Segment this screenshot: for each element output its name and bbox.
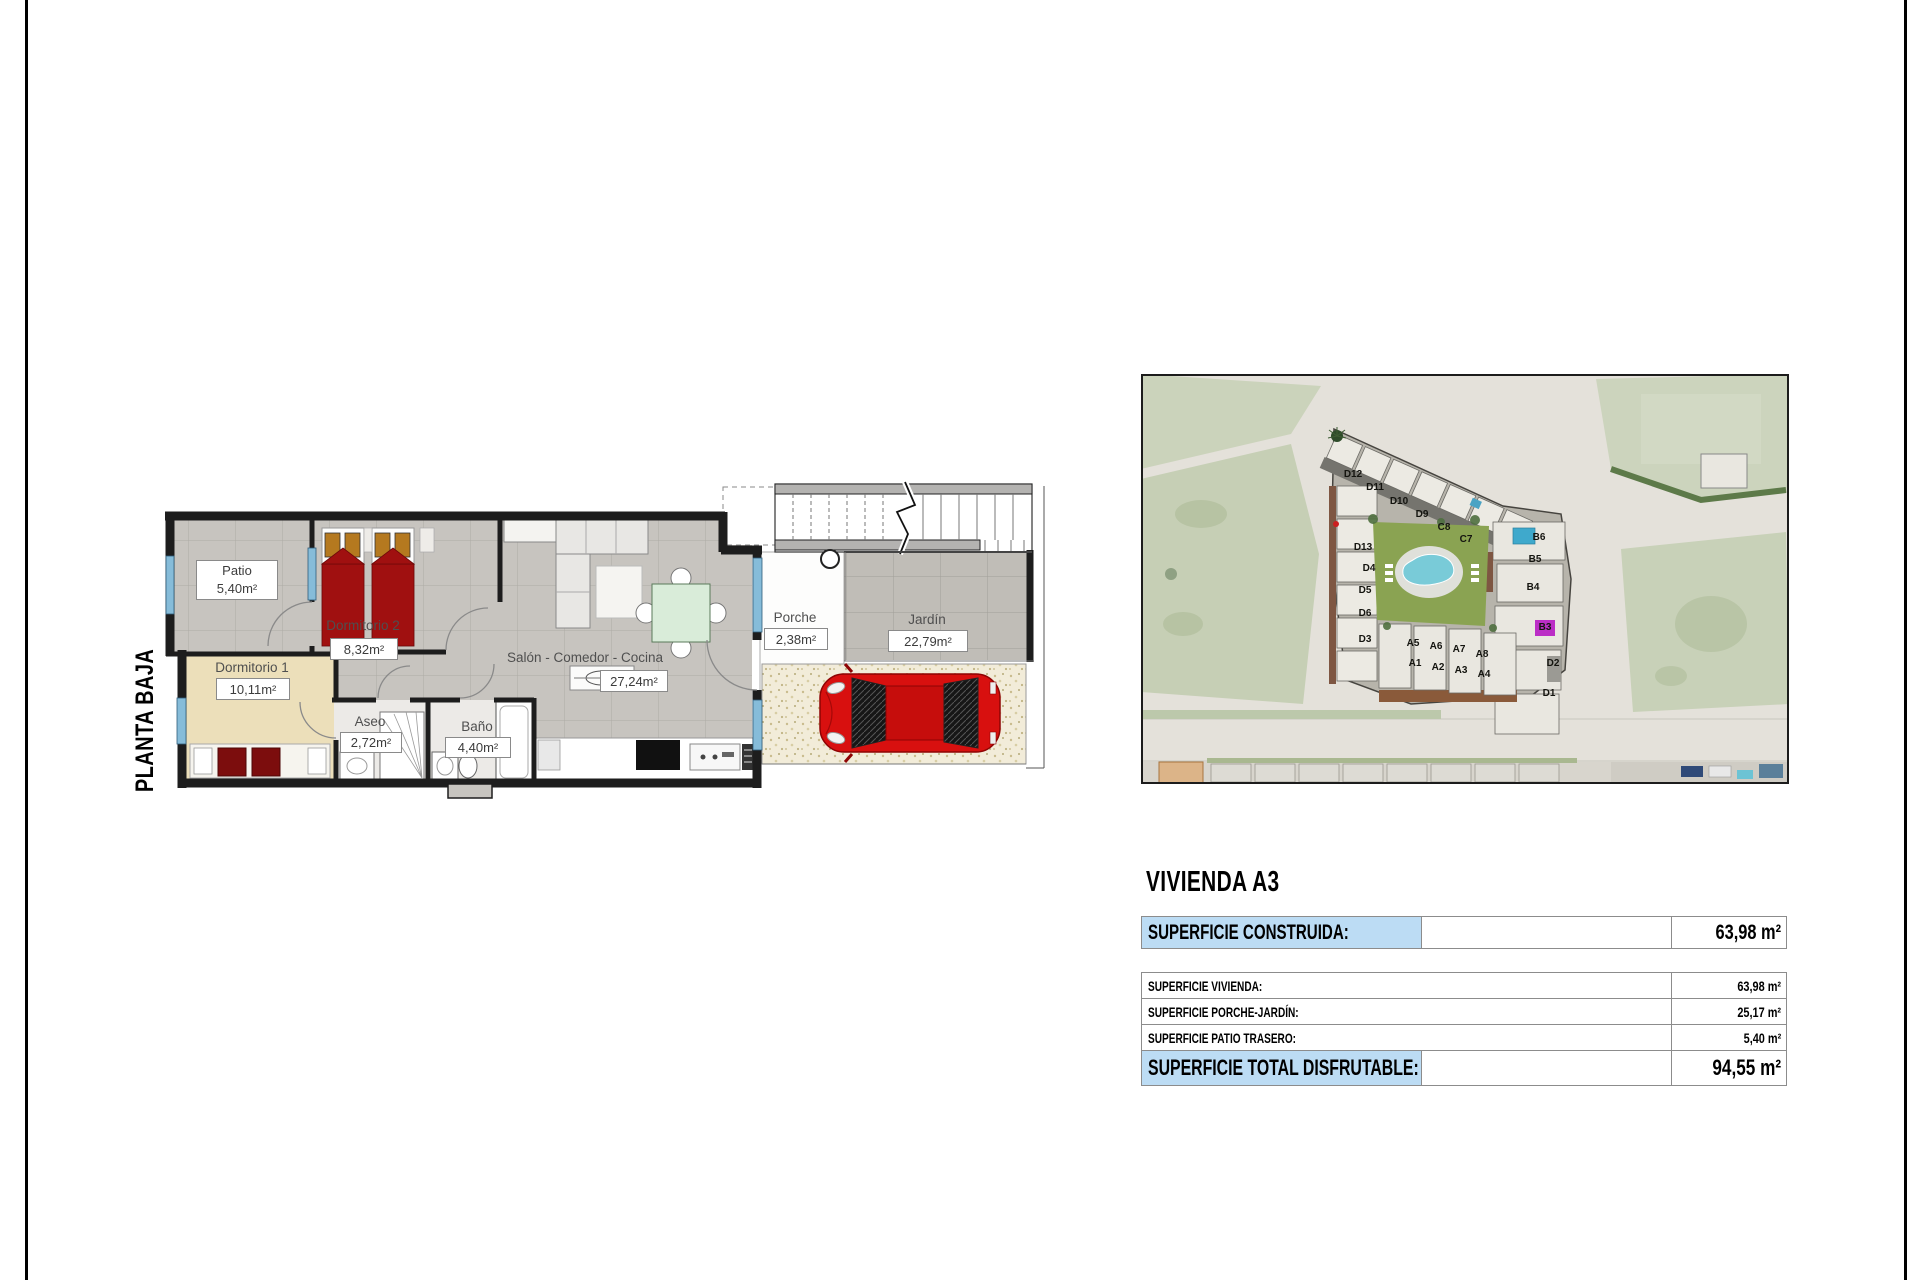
room-area-dormitorio2: 8,32m² [330,638,398,660]
stairs [723,482,1032,554]
room-name-bano: Baño [449,719,505,734]
row-label: SUPERFICIE PORCHE-JARDÍN: [1141,998,1672,1025]
unit-label: A7 [1453,644,1466,655]
kitchen [536,738,755,782]
unit-label: A5 [1407,638,1420,649]
unit-label: D3 [1359,634,1372,645]
sofa [556,520,648,628]
row-spacer-cell [1422,1050,1672,1086]
room-area-dormitorio1: 10,11m² [216,678,290,700]
unit-label: C8 [1438,522,1451,533]
sheet-frame-left [25,0,28,1280]
room-label-patio: Patio 5,40m² [196,560,278,600]
sheet-frame-right [1904,0,1907,1280]
room-name-jardin: Jardín [898,612,956,627]
unit-label: D11 [1366,482,1384,493]
room-area-porche: 2,38m² [764,628,828,650]
unit-label: A2 [1432,662,1445,673]
summary-row-construida: SUPERFICIE CONSTRUIDA: 63,98 m² [1141,916,1789,949]
room-name: Patio [222,563,252,578]
unit-label: A6 [1430,641,1443,652]
row-label: SUPERFICIE CONSTRUIDA: [1141,916,1422,949]
row-value: 63,98 m² [1672,972,1787,999]
row-label: SUPERFICIE TOTAL DISFRUTABLE: [1141,1050,1422,1086]
unit-label: A3 [1455,665,1468,676]
room-name-aseo: Aseo [344,714,396,729]
unit-label: D5 [1359,585,1372,596]
unit-label: B4 [1527,582,1540,593]
summary-row-vivienda: SUPERFICIE VIVIENDA: 63,98 m² [1141,972,1789,999]
car [820,664,1000,762]
row-label: SUPERFICIE PATIO TRASERO: [1141,1024,1672,1051]
unit-label: D12 [1344,469,1363,480]
porch-column [821,550,839,568]
unit-label: D1 [1543,688,1556,699]
room-area-salon: 27,24m² [600,670,668,692]
unit-label: C7 [1460,534,1473,545]
room-area-aseo: 2,72m² [340,732,402,753]
unit-label: A4 [1478,669,1491,680]
unit-label: A1 [1409,658,1422,669]
drawing-sheet: PLANTA BAJA [0,0,1920,1280]
room-area-jardin: 22,79m² [888,630,968,652]
row-label: SUPERFICIE VIVIENDA: [1141,972,1672,999]
room-name-porche: Porche [766,610,824,625]
summary-row-total: SUPERFICIE TOTAL DISFRUTABLE: 94,55 m² [1141,1050,1789,1086]
unit-label: A8 [1476,649,1489,660]
unit-label: D6 [1359,608,1372,619]
unit-label: D9 [1416,509,1429,520]
bedroom1-bed [190,744,330,778]
unit-label: D2 [1547,658,1560,669]
summary-row-porche-jardin: SUPERFICIE PORCHE-JARDÍN: 25,17 m² [1141,998,1789,1025]
room-name-salon: Salón - Comedor - Cocina [500,650,670,665]
unit-label: D4 [1363,563,1376,574]
row-value: 94,55 m² [1672,1050,1787,1086]
site-aerial-map: D12 D11 D10 D9 C8 C7 D13 D4 D5 D6 D3 A5 … [1141,374,1789,784]
unit-label: B3 [1539,622,1552,633]
unit-label: B5 [1529,554,1542,565]
unit-label: D13 [1354,542,1373,553]
unit-label: D10 [1390,496,1409,507]
summary-row-patio-trasero: SUPERFICIE PATIO TRASERO: 5,40 m² [1141,1024,1789,1051]
room-area-bano: 4,40m² [445,737,511,758]
unit-title: VIVIENDA A3 [1146,866,1331,899]
row-value: 63,98 m² [1672,916,1787,949]
room-area: 5,40m² [217,581,257,596]
room-name-dormitorio1: Dormitorio 1 [198,660,306,675]
row-spacer-cell [1422,916,1672,949]
row-value: 25,17 m² [1672,998,1787,1025]
unit-label: B6 [1533,532,1546,543]
room-name-dormitorio2: Dormitorio 2 [306,618,420,633]
row-value: 5,40 m² [1672,1024,1787,1051]
